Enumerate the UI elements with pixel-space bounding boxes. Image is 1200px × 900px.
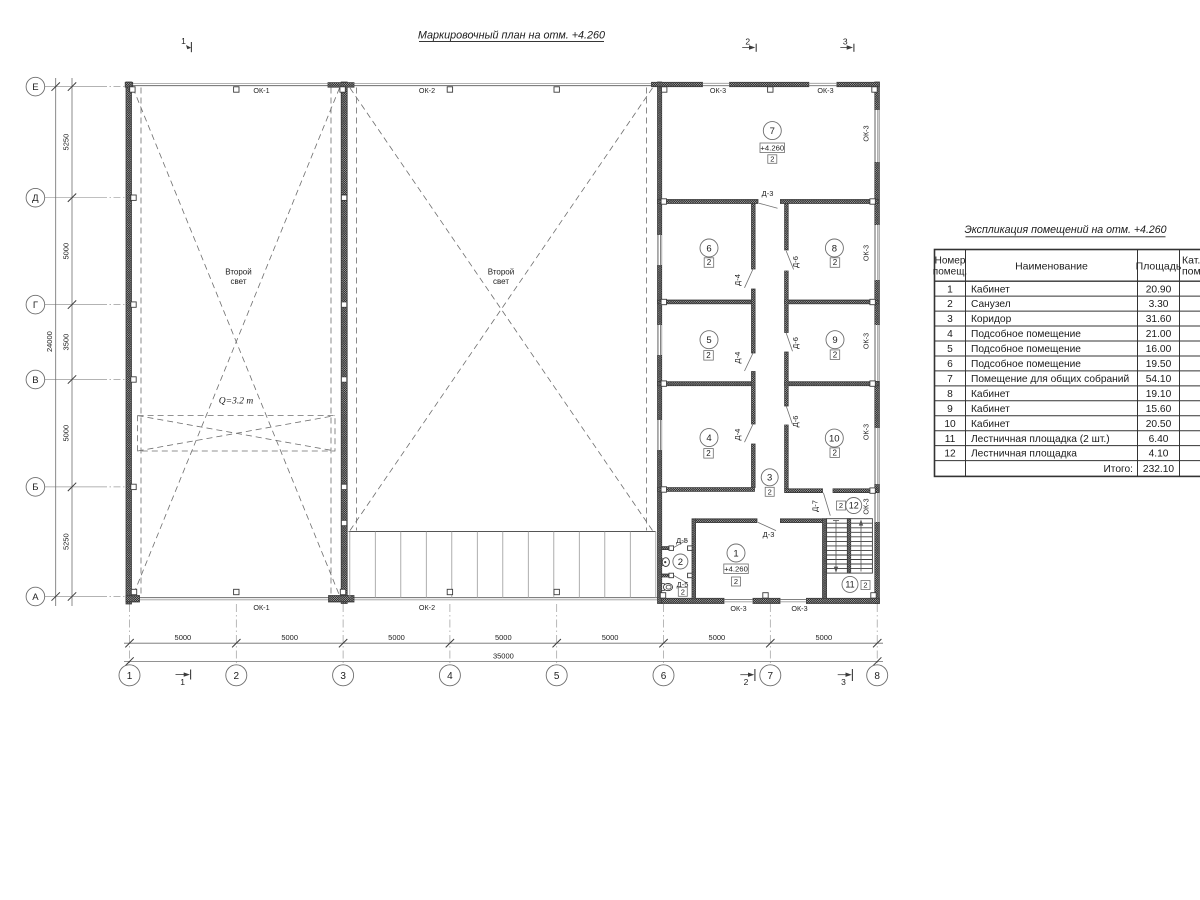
svg-text:ОК-2: ОК-2 xyxy=(419,603,435,612)
svg-text:А: А xyxy=(32,592,39,603)
svg-text:ОК-3: ОК-3 xyxy=(862,245,871,261)
svg-text:свет: свет xyxy=(493,277,509,286)
svg-text:3: 3 xyxy=(767,473,772,484)
svg-text:Маркировочный план на отм. +4.: Маркировочный план на отм. +4.260 xyxy=(418,29,605,41)
svg-text:2: 2 xyxy=(681,587,685,596)
svg-text:Санузел: Санузел xyxy=(971,299,1011,310)
svg-text:11: 11 xyxy=(945,434,956,445)
svg-text:20.50: 20.50 xyxy=(1146,419,1172,430)
svg-text:54.10: 54.10 xyxy=(1146,374,1172,385)
svg-text:Подсобное помещение: Подсобное помещение xyxy=(971,328,1081,340)
svg-text:Экспликация помещений на отм.: Экспликация помещений на отм. +4.260 xyxy=(964,224,1166,236)
svg-text:8: 8 xyxy=(832,243,837,254)
svg-text:5250: 5250 xyxy=(62,533,71,550)
svg-text:Д-4: Д-4 xyxy=(733,429,742,441)
svg-text:5000: 5000 xyxy=(281,633,298,642)
svg-text:2: 2 xyxy=(745,37,750,47)
svg-text:2: 2 xyxy=(833,350,838,359)
svg-text:5000: 5000 xyxy=(175,633,192,642)
svg-text:11: 11 xyxy=(845,580,854,590)
svg-text:6: 6 xyxy=(947,359,953,370)
svg-text:ОК-3: ОК-3 xyxy=(862,125,871,141)
svg-text:Второй: Второй xyxy=(488,268,514,277)
svg-text:4: 4 xyxy=(947,329,953,340)
svg-text:ОК-3: ОК-3 xyxy=(817,86,833,95)
svg-text:2: 2 xyxy=(770,155,774,164)
svg-text:ОК-2: ОК-2 xyxy=(419,86,435,95)
svg-text:19.10: 19.10 xyxy=(1146,389,1172,400)
svg-text:Е: Е xyxy=(32,82,38,93)
svg-text:3500: 3500 xyxy=(62,334,71,351)
svg-text:12: 12 xyxy=(944,449,956,460)
svg-text:Номер: Номер xyxy=(935,256,966,267)
svg-text:ОК-3: ОК-3 xyxy=(862,498,871,514)
svg-text:5: 5 xyxy=(947,344,953,355)
svg-text:10: 10 xyxy=(829,433,840,444)
svg-text:5000: 5000 xyxy=(815,633,832,642)
svg-text:Д-6: Д-6 xyxy=(791,256,800,268)
svg-text:3: 3 xyxy=(947,314,953,325)
svg-text:4: 4 xyxy=(706,433,711,444)
svg-text:помещ.: помещ. xyxy=(933,267,967,278)
svg-text:9: 9 xyxy=(947,404,953,415)
svg-text:Подсобное помещение: Подсобное помещение xyxy=(971,358,1081,370)
svg-text:+4.260: +4.260 xyxy=(724,564,748,573)
svg-text:3.30: 3.30 xyxy=(1149,299,1169,310)
svg-text:Кабинет: Кабинет xyxy=(971,388,1010,400)
svg-text:1: 1 xyxy=(181,36,186,46)
svg-text:2: 2 xyxy=(833,258,838,267)
svg-text:Второй: Второй xyxy=(225,268,251,277)
svg-text:6.40: 6.40 xyxy=(1149,434,1169,445)
svg-text:Д-4: Д-4 xyxy=(733,352,742,364)
svg-text:Итого:: Итого: xyxy=(1103,464,1133,475)
svg-text:31.60: 31.60 xyxy=(1146,314,1172,325)
svg-text:10: 10 xyxy=(944,419,956,430)
svg-text:20.90: 20.90 xyxy=(1146,284,1172,295)
svg-text:5000: 5000 xyxy=(495,633,512,642)
svg-text:1: 1 xyxy=(127,671,133,682)
svg-text:2: 2 xyxy=(839,501,843,510)
svg-text:Подсобное помещение: Подсобное помещение xyxy=(971,343,1081,355)
svg-text:7: 7 xyxy=(768,671,774,682)
svg-text:ОК-3: ОК-3 xyxy=(791,604,807,613)
svg-text:свет: свет xyxy=(230,277,246,286)
svg-text:Площадь: Площадь xyxy=(1136,261,1182,273)
svg-text:15.60: 15.60 xyxy=(1146,404,1172,415)
svg-text:232.10: 232.10 xyxy=(1143,464,1174,475)
svg-text:7: 7 xyxy=(947,374,953,385)
svg-text:8: 8 xyxy=(947,389,953,400)
svg-text:Д-6: Д-6 xyxy=(791,416,800,428)
svg-text:Коридор: Коридор xyxy=(971,314,1012,325)
svg-text:Б: Б xyxy=(32,482,38,493)
svg-text:8: 8 xyxy=(874,671,880,682)
svg-text:5: 5 xyxy=(554,671,560,682)
svg-text:5000: 5000 xyxy=(602,633,619,642)
svg-text:1: 1 xyxy=(180,677,185,687)
svg-text:9: 9 xyxy=(832,335,837,346)
svg-text:ОК-3: ОК-3 xyxy=(862,424,871,440)
svg-text:Г: Г xyxy=(33,300,38,311)
svg-text:7: 7 xyxy=(770,126,775,137)
svg-text:ОК-3: ОК-3 xyxy=(710,86,726,95)
svg-text:Д-3: Д-3 xyxy=(762,189,774,198)
svg-text:2: 2 xyxy=(768,487,772,496)
svg-text:Помещение для общих собраний: Помещение для общих собраний xyxy=(971,373,1129,385)
svg-text:24000: 24000 xyxy=(45,331,54,352)
svg-text:2: 2 xyxy=(734,577,738,586)
svg-text:5250: 5250 xyxy=(62,134,71,151)
svg-text:Д-5: Д-5 xyxy=(676,536,688,545)
svg-text:2: 2 xyxy=(706,351,711,360)
svg-text:5000: 5000 xyxy=(62,243,71,260)
svg-text:2: 2 xyxy=(234,671,240,682)
svg-text:19.50: 19.50 xyxy=(1146,359,1172,370)
svg-text:5: 5 xyxy=(706,335,711,346)
svg-text:5000: 5000 xyxy=(709,633,726,642)
svg-text:Q=3.2 т: Q=3.2 т xyxy=(219,397,254,407)
svg-text:Д: Д xyxy=(32,193,39,204)
svg-text:2: 2 xyxy=(707,258,712,267)
svg-text:В: В xyxy=(32,375,38,386)
svg-text:1: 1 xyxy=(733,548,738,559)
svg-text:Д-3: Д-3 xyxy=(763,530,775,539)
svg-text:6: 6 xyxy=(706,243,711,254)
svg-text:Д-7: Д-7 xyxy=(810,500,819,512)
svg-text:2: 2 xyxy=(678,557,683,568)
svg-text:ОК-1: ОК-1 xyxy=(253,86,269,95)
svg-text:5000: 5000 xyxy=(62,425,71,442)
svg-text:Лестничная площадка (2 шт.): Лестничная площадка (2 шт.) xyxy=(971,434,1110,445)
svg-text:2: 2 xyxy=(947,299,953,310)
svg-text:Д-4: Д-4 xyxy=(733,274,742,286)
svg-text:Кабинет: Кабинет xyxy=(971,403,1010,415)
svg-text:2: 2 xyxy=(706,449,711,458)
svg-text:2: 2 xyxy=(832,448,837,457)
svg-text:ОК-3: ОК-3 xyxy=(862,333,871,349)
svg-text:пом.: пом. xyxy=(1182,266,1200,278)
svg-text:12: 12 xyxy=(849,501,859,511)
svg-text:21.00: 21.00 xyxy=(1146,329,1172,340)
svg-text:4.10: 4.10 xyxy=(1149,449,1169,460)
svg-text:Лестничная площадка: Лестничная площадка xyxy=(971,449,1077,460)
svg-text:2: 2 xyxy=(863,581,867,590)
svg-text:3: 3 xyxy=(841,677,846,687)
svg-text:2: 2 xyxy=(744,677,749,687)
svg-text:1: 1 xyxy=(947,284,953,295)
svg-text:6: 6 xyxy=(661,671,667,682)
svg-text:5000: 5000 xyxy=(388,633,405,642)
svg-text:3: 3 xyxy=(843,37,848,47)
svg-text:ОК-3: ОК-3 xyxy=(730,604,746,613)
svg-text:Наименование: Наименование xyxy=(1015,261,1088,273)
svg-text:Д-6: Д-6 xyxy=(791,337,800,349)
svg-text:Кабинет: Кабинет xyxy=(971,283,1010,295)
svg-text:4: 4 xyxy=(447,671,453,682)
svg-text:3: 3 xyxy=(340,671,346,682)
svg-text:+4.260: +4.260 xyxy=(760,143,784,152)
svg-text:Кабинет: Кабинет xyxy=(971,418,1010,430)
svg-text:ОК-1: ОК-1 xyxy=(253,603,269,612)
svg-text:35000: 35000 xyxy=(493,651,514,660)
svg-text:16.00: 16.00 xyxy=(1146,344,1172,355)
